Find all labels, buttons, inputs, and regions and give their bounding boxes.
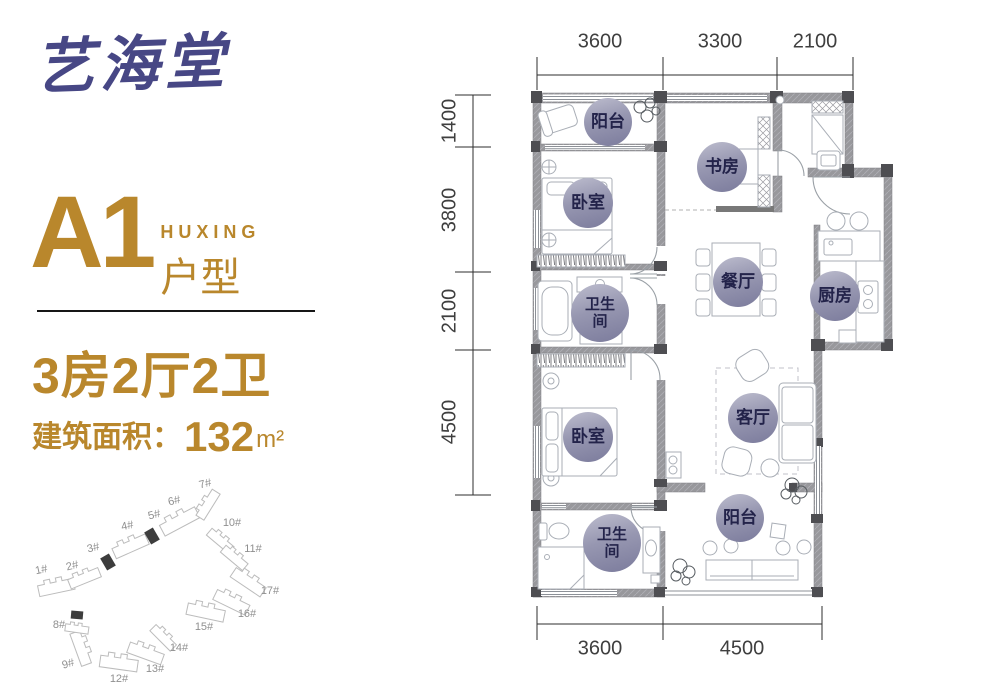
building-label: 3# bbox=[86, 541, 102, 556]
room-label-bathroom-mid: 卫生间 bbox=[571, 284, 629, 342]
building-label: 4# bbox=[120, 519, 135, 533]
dim-left-2: 3800 bbox=[439, 188, 462, 233]
plant-icon bbox=[671, 559, 695, 585]
brand-logo: 艺海堂 bbox=[33, 13, 231, 107]
area-label: 建筑面积： bbox=[32, 412, 182, 456]
building-label: 13# bbox=[146, 663, 165, 675]
dim-top-2: 3300 bbox=[698, 31, 743, 54]
bathtub bbox=[538, 281, 572, 341]
bookshelf bbox=[758, 175, 770, 207]
toilet bbox=[549, 523, 569, 539]
dining-chair bbox=[696, 299, 710, 316]
wardrobe bbox=[537, 255, 625, 267]
building-label: 2# bbox=[65, 559, 81, 574]
dim-bottom-2: 4500 bbox=[720, 638, 765, 661]
building-label: 9# bbox=[61, 656, 77, 671]
entry-door bbox=[778, 150, 804, 176]
stool bbox=[703, 541, 717, 555]
stool bbox=[797, 540, 811, 554]
building-label: 7# bbox=[198, 477, 214, 492]
room-label-study: 书房 bbox=[697, 142, 747, 192]
room-label-living: 客厅 bbox=[728, 393, 778, 443]
site-plan-map: 1# 2# 3# 4# 5# 6# 7# 8# 9# 10# 11# 12# 1… bbox=[34, 477, 280, 685]
entry-room-furniture bbox=[776, 96, 843, 170]
unit-title: A1 HUXING 户型 bbox=[30, 184, 260, 303]
unit-type-en: HUXING bbox=[160, 222, 260, 243]
building-label: 8# bbox=[53, 619, 66, 631]
area-unit: m² bbox=[256, 426, 284, 456]
building-label: 1# bbox=[34, 563, 49, 577]
building-label: 5# bbox=[147, 508, 163, 523]
dim-bottom-1: 3600 bbox=[578, 638, 623, 661]
room-label-balcony-top: 阳台 bbox=[584, 98, 632, 146]
bedroom2-door bbox=[631, 350, 660, 380]
building-label: 6# bbox=[167, 494, 183, 509]
room-label-bedroom-top: 卧室 bbox=[563, 178, 613, 228]
bathroom1-door bbox=[630, 278, 657, 305]
kitchen-sink bbox=[824, 239, 852, 255]
pillow bbox=[546, 412, 558, 440]
building-label: 16# bbox=[238, 608, 257, 620]
room-label-bedroom-bottom: 卧室 bbox=[563, 412, 613, 462]
bar-stool bbox=[850, 212, 868, 230]
divider-line bbox=[37, 310, 315, 312]
armchair bbox=[732, 346, 772, 385]
armchair bbox=[720, 445, 754, 478]
kitchen-door bbox=[813, 177, 850, 214]
toilet bbox=[539, 523, 547, 540]
dining-chair bbox=[762, 249, 776, 266]
stool bbox=[776, 541, 790, 555]
room-label-dining: 餐厅 bbox=[713, 257, 763, 307]
bookshelf bbox=[758, 117, 770, 149]
building-label: 15# bbox=[195, 621, 214, 633]
entry-cabinet bbox=[812, 101, 843, 113]
room-label-kitchen: 厨房 bbox=[810, 271, 860, 321]
building-label: 17# bbox=[261, 585, 280, 597]
dining-chair bbox=[696, 249, 710, 266]
wardrobe bbox=[537, 354, 625, 367]
unit-name: A1 bbox=[30, 184, 152, 303]
dining-chair bbox=[762, 299, 776, 316]
dim-left-3: 2100 bbox=[439, 289, 462, 334]
pillow bbox=[546, 444, 558, 472]
room-label-balcony-bottom: 阳台 bbox=[716, 494, 764, 542]
room-label-bathroom-bottom: 卫生间 bbox=[583, 514, 641, 572]
dim-left-1: 1400 bbox=[439, 99, 462, 144]
shower bbox=[538, 547, 584, 589]
building-label: 12# bbox=[110, 673, 129, 685]
building-label: 10# bbox=[223, 517, 242, 529]
area-spec: 建筑面积： 132 m² bbox=[32, 412, 284, 456]
dining-chair bbox=[762, 274, 776, 291]
dim-top-3: 2100 bbox=[793, 31, 838, 54]
building-label: 14# bbox=[170, 642, 189, 654]
dim-top-1: 3600 bbox=[578, 31, 623, 54]
poster: 1# 2# 3# 4# 5# 6# 7# 8# 9# 10# 11# 12# 1… bbox=[0, 0, 1000, 700]
dim-left-4: 4500 bbox=[439, 400, 462, 445]
unit-type-cn: 户型 bbox=[160, 245, 260, 303]
layout-spec: 3房2厅2卫 bbox=[32, 336, 271, 408]
area-value: 132 bbox=[184, 418, 254, 456]
side-table bbox=[770, 523, 786, 539]
side-table bbox=[761, 459, 779, 477]
bar-stool bbox=[827, 212, 845, 230]
dining-chair bbox=[696, 274, 710, 291]
building-label: 11# bbox=[244, 543, 262, 555]
